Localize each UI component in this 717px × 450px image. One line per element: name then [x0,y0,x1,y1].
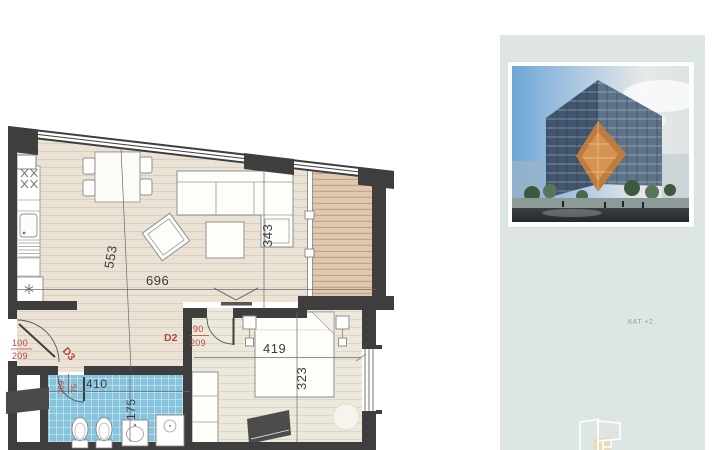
washbasin [122,420,148,446]
entry-door-height: 209 [12,351,28,361]
shaft [17,155,36,169]
entry-door-width: 100 [12,338,28,348]
coffee-table [206,222,244,258]
dining-chair [83,158,95,174]
dim-bedroom-width: 419 [263,341,286,356]
floor-plan: 696 553 343 419 323 410 175 100 209 D3 D… [0,0,480,450]
dining-table [95,152,140,202]
wardrobe [192,372,218,446]
shower [156,415,184,446]
building-photo [508,62,694,227]
key-plan-unit-highlight [594,437,610,450]
floor-label: КАТ +2. [628,319,656,326]
toilet [72,418,88,449]
side-panel: КАТ +2. [500,35,705,450]
bathroom-door-width: 75 [70,384,79,393]
dim-balcony-depth: 343 [260,224,275,247]
wall-lamp [339,338,347,346]
dining-chair [140,157,152,173]
hallway-floor [17,302,183,372]
building-render [512,66,689,222]
dim-bathroom-depth: 175 [124,398,138,420]
dim-bathroom-width: 410 [86,377,108,391]
dining-chair [140,179,152,195]
wall-lamp [246,338,254,346]
bedroom-window [362,345,382,414]
dim-living-width: 696 [146,273,169,288]
bidet [96,418,112,449]
kitchen-counter [17,166,43,302]
bedroom-door-id: D2 [164,332,178,344]
plan-sheet: 696 553 343 419 323 410 175 100 209 D3 D… [0,0,717,450]
dim-bedroom-depth: 323 [294,367,309,390]
bathroom-door-height: 209 [57,380,66,394]
dining-chair [83,180,95,196]
key-plan [570,413,634,450]
round-rug [333,404,359,430]
sink [20,214,37,237]
bedroom-door-height: 209 [190,338,206,348]
bedroom-door-width: 90 [193,324,204,334]
reflection [542,209,602,217]
street [512,208,689,222]
